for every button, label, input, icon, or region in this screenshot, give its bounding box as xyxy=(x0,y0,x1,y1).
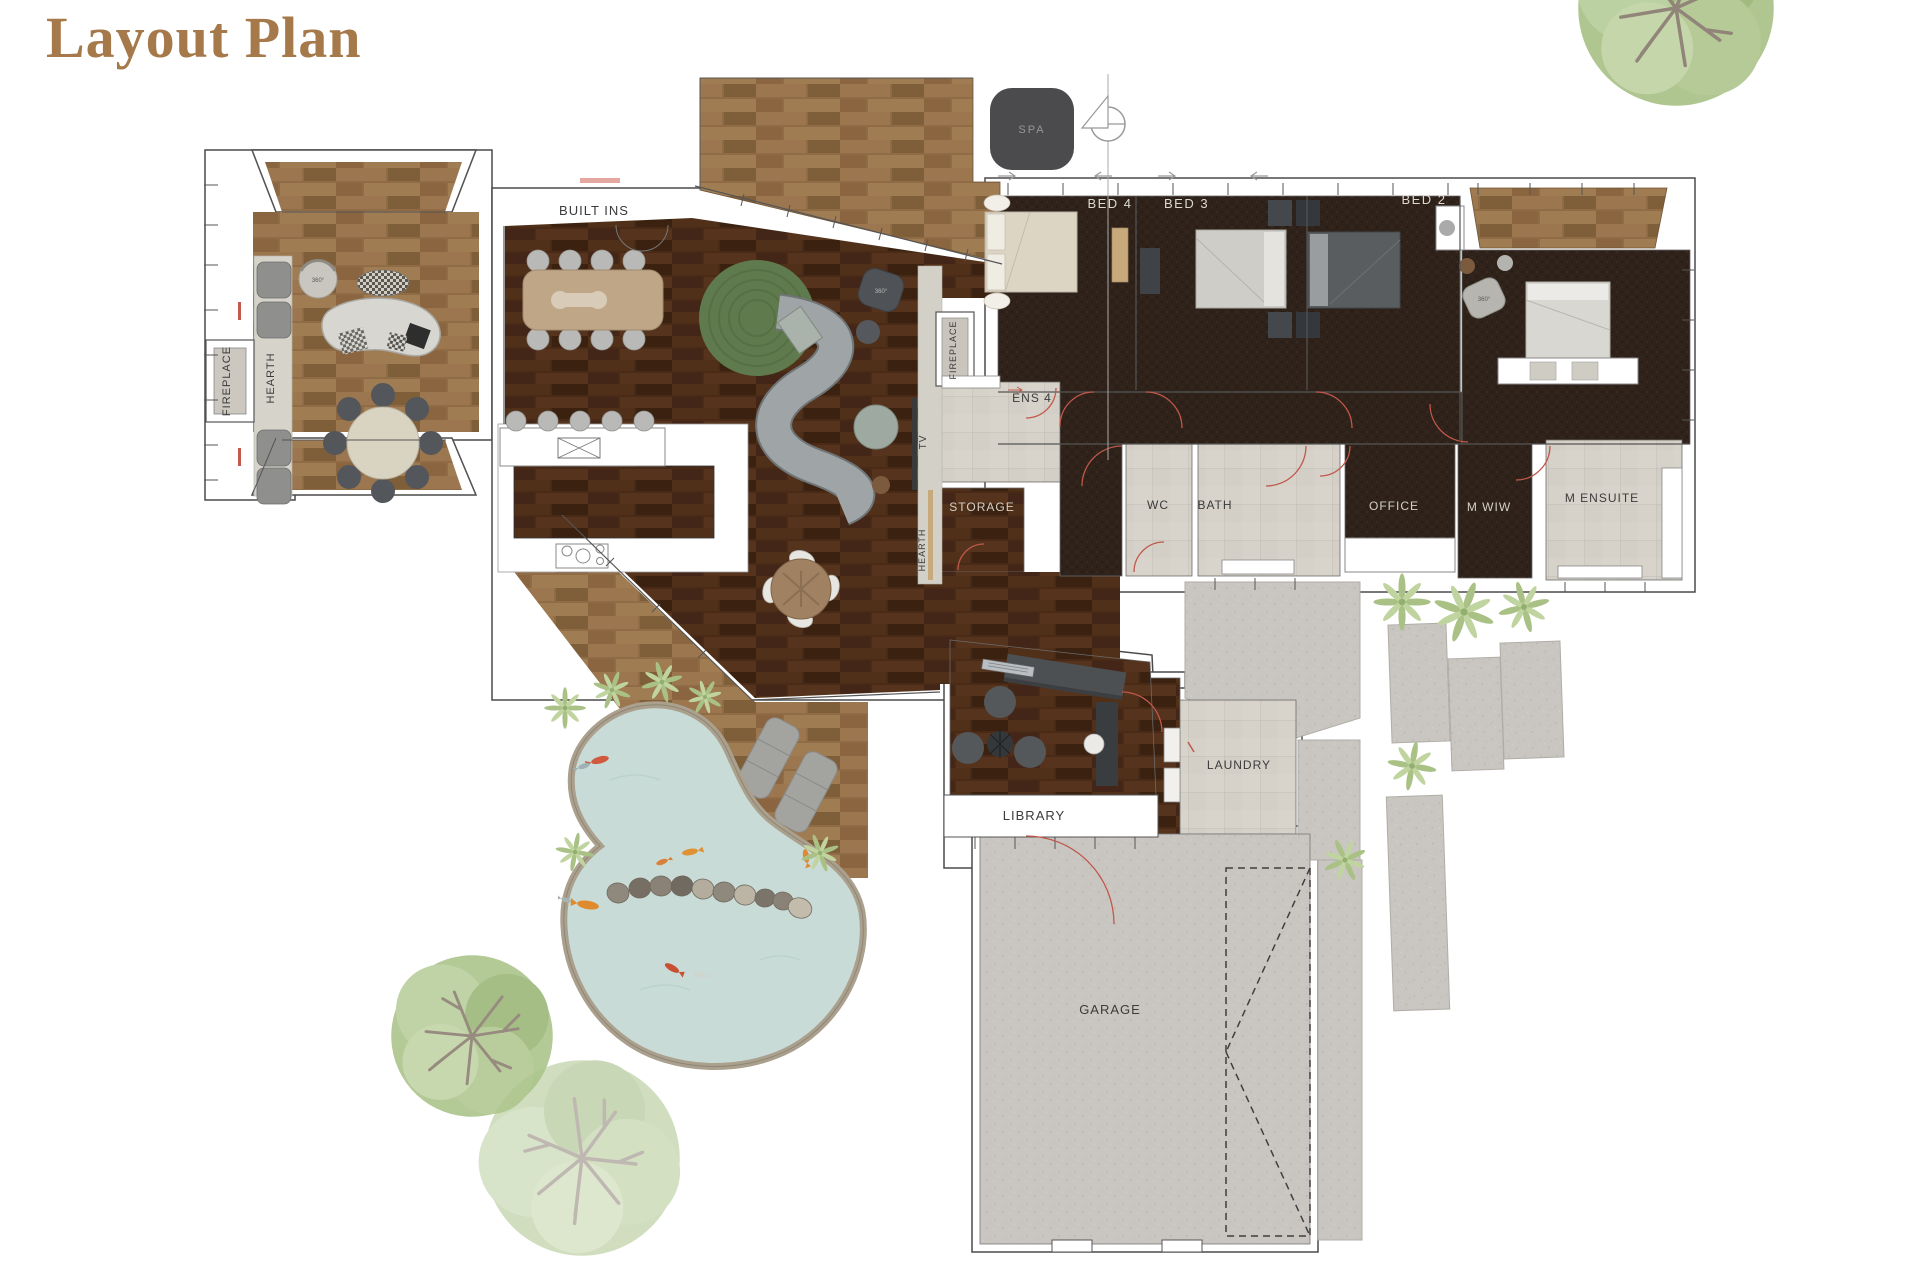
dining-set xyxy=(523,250,663,350)
tree-top-right xyxy=(1577,0,1774,106)
label-hearth-center: HEARTH xyxy=(917,529,927,572)
bed3-desk-chair xyxy=(1140,248,1160,294)
label-tv: TV xyxy=(918,435,929,450)
label-bed3: BED 3 xyxy=(1164,196,1209,211)
mensuite-tile xyxy=(1546,440,1682,580)
kitchen-counter xyxy=(514,466,714,538)
garage-window xyxy=(1162,1240,1202,1252)
closet-carpet xyxy=(1060,444,1122,576)
master-deck xyxy=(1470,188,1667,248)
garage xyxy=(980,834,1310,1252)
round-table xyxy=(347,407,419,479)
coffee-table-marble xyxy=(854,405,898,449)
label-garage: GARAGE xyxy=(1079,1002,1141,1017)
bath-vanity xyxy=(1222,560,1294,574)
floor-plan-canvas: BUILT INS BED 4 BED 3 BED 2 ENS 4 STORAG… xyxy=(0,0,1920,1280)
label-built-ins: BUILT INS xyxy=(559,203,629,218)
check-rug xyxy=(357,270,409,296)
master-bench xyxy=(1498,358,1638,384)
left-wing-top-bay-floor xyxy=(265,162,462,212)
label-spa: SPA xyxy=(1018,124,1045,136)
paver-slab xyxy=(1500,641,1564,759)
label-fireplace-left: FIREPLACE xyxy=(221,346,233,416)
paver-slab xyxy=(1388,623,1450,743)
label-ens4: ENS 4 xyxy=(1012,391,1052,405)
label-laundry: LAUNDRY xyxy=(1207,758,1271,772)
paver-slab xyxy=(1448,657,1504,771)
label-m-wiw: M WIW xyxy=(1467,500,1511,514)
paver-slab xyxy=(1386,795,1449,1011)
label-storage: STORAGE xyxy=(949,500,1014,514)
office-desk xyxy=(1345,538,1455,572)
library-globe xyxy=(1084,734,1104,754)
hall-carpet xyxy=(998,392,1462,444)
tv-panel xyxy=(912,398,917,490)
bed4-desk xyxy=(1112,228,1128,282)
paver-slab xyxy=(1318,860,1362,1240)
layout-plan-page: Layout Plan xyxy=(0,0,1920,1280)
label-bath: BATH xyxy=(1197,498,1232,512)
timber-stool xyxy=(872,476,890,494)
label-swivel-left: 360° xyxy=(312,278,325,284)
garage-floor xyxy=(980,834,1310,1244)
label-fireplace-center: FIREPLACE xyxy=(948,320,958,379)
label-swivel-mid: 360° xyxy=(875,289,888,295)
label-bed2: BED 2 xyxy=(1401,192,1446,207)
table-inlay xyxy=(551,291,607,309)
mensuite-vanity xyxy=(1558,566,1642,578)
label-bed4: BED 4 xyxy=(1087,196,1132,211)
garage-window xyxy=(1052,1240,1092,1252)
label-library: LIBRARY xyxy=(1003,808,1065,823)
label-office: OFFICE xyxy=(1369,499,1419,513)
label-swivel-master: 360° xyxy=(1478,297,1491,303)
timber-ledge xyxy=(928,490,933,580)
mensuite-shower xyxy=(1662,468,1682,578)
round-dining-set xyxy=(323,383,443,503)
label-wc: WC xyxy=(1147,498,1169,512)
label-hearth-left: HEARTH xyxy=(265,352,277,403)
north-arrow-triangle xyxy=(1082,96,1108,128)
office-carpet xyxy=(1345,444,1455,538)
label-m-ensuite: M ENSUITE xyxy=(1565,491,1639,505)
ottoman xyxy=(856,320,880,344)
kitchen xyxy=(498,411,748,572)
